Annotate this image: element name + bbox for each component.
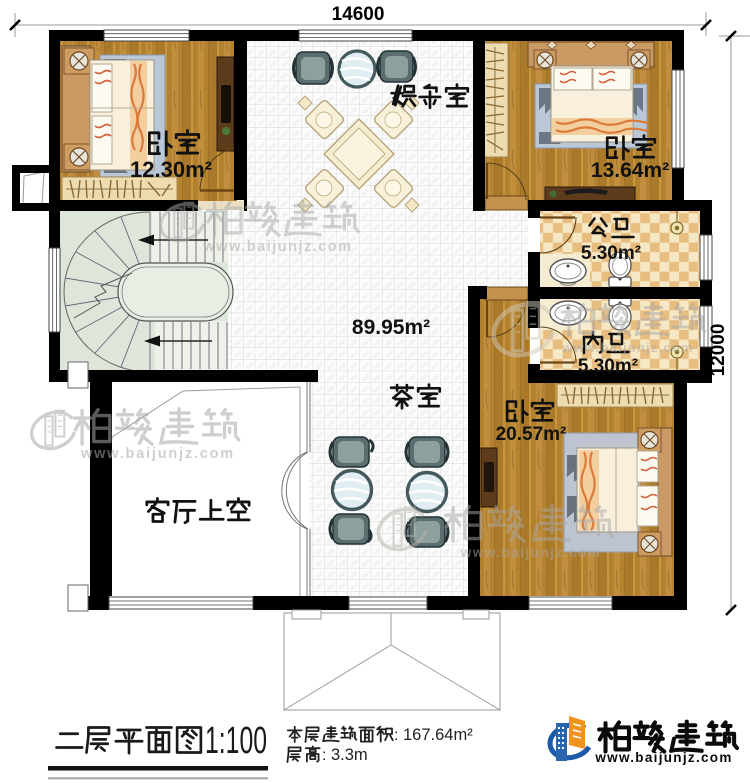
svg-text:12000: 12000 [708,324,729,377]
svg-text:5.30m²: 5.30m² [578,356,638,377]
svg-text:89.95m²: 89.95m² [352,316,430,339]
svg-text:13.64m²: 13.64m² [591,159,669,182]
svg-text:20.57m²: 20.57m² [496,424,567,445]
svg-text:www.baijunjz.com: www.baijunjz.com [202,239,352,255]
svg-text:12.30m²: 12.30m² [130,157,212,182]
svg-text:www.baijunjz.com: www.baijunjz.com [460,545,602,560]
svg-text:167.64m²: 167.64m² [403,726,473,744]
svg-text::: : [322,747,326,764]
svg-text::: : [394,727,398,744]
svg-text:www.baijunjz.com: www.baijunjz.com [594,750,732,765]
svg-text:www.baijunjz.com: www.baijunjz.com [561,340,693,355]
svg-text:www.baijunjz.com: www.baijunjz.com [80,446,235,462]
svg-text:14600: 14600 [332,4,385,25]
svg-text:3.3m: 3.3m [331,746,368,764]
svg-text:1:100: 1:100 [205,720,267,762]
svg-text:5.30m²: 5.30m² [581,243,641,264]
